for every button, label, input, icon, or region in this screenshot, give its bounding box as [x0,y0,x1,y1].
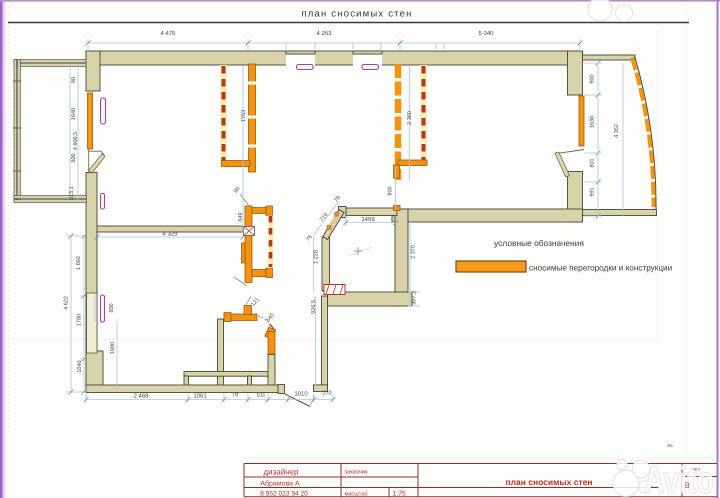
svg-text:397,3: 397,3 [412,291,418,305]
svg-text:план сносимых стен: план сносимых стен [301,9,412,20]
svg-text:Avito: Avito [644,460,714,498]
svg-text:900: 900 [388,186,394,195]
svg-text:649: 649 [238,212,244,221]
svg-text:1409: 1409 [361,216,375,223]
svg-text:дизайнер: дизайнер [263,468,299,477]
svg-text:Абрамова А: Абрамова А [260,480,300,488]
svg-text:Ав: Ав [667,443,673,448]
svg-text:заказчик: заказчик [344,470,368,476]
svg-text:4 329: 4 329 [162,231,178,238]
svg-text:условные обозначения: условные обозначения [494,238,584,248]
svg-text:1630: 1630 [590,116,596,128]
svg-text:1640: 1640 [71,108,77,120]
svg-text:план сносимых стен: план сносимых стен [505,477,592,487]
svg-text:масштаб: масштаб [344,491,367,498]
svg-text:926,5: 926,5 [311,300,317,314]
svg-text:515,1: 515,1 [69,186,75,200]
svg-text:сносимые перегородки и констру: сносимые перегородки и конструкции [529,264,672,273]
svg-text:5 040: 5 040 [478,30,494,37]
svg-text:1 220: 1 220 [314,250,320,264]
svg-text:1900: 1900 [110,342,116,354]
svg-text:1061: 1061 [193,393,207,400]
svg-text:2 360: 2 360 [407,111,413,125]
svg-text:800: 800 [109,303,115,312]
svg-text:1040: 1040 [77,360,83,372]
svg-text:991: 991 [590,187,596,196]
svg-text:1753: 1753 [241,110,247,122]
svg-text:4 806,5: 4 806,5 [73,132,79,150]
svg-text:90: 90 [71,77,77,83]
svg-text:1:75: 1:75 [392,491,406,498]
svg-text:801: 801 [590,158,596,167]
svg-text:270: 270 [322,391,331,397]
svg-text:79: 79 [232,393,238,399]
svg-text:8 952 023 94 20: 8 952 023 94 20 [260,491,308,498]
svg-text:4 622: 4 622 [64,296,70,310]
svg-text:1780: 1780 [77,314,83,326]
svg-text:4 263: 4 263 [316,30,332,37]
svg-text:2 468: 2 468 [133,393,149,400]
svg-text:4 352: 4 352 [614,124,620,138]
svg-text:2 370: 2 370 [411,245,417,259]
svg-text:1010: 1010 [294,391,308,398]
svg-text:1 692: 1 692 [76,256,82,270]
svg-text:511: 511 [257,393,266,399]
svg-text:800: 800 [71,153,77,162]
svg-text:900: 900 [590,74,596,83]
svg-text:4 476: 4 476 [160,30,176,37]
